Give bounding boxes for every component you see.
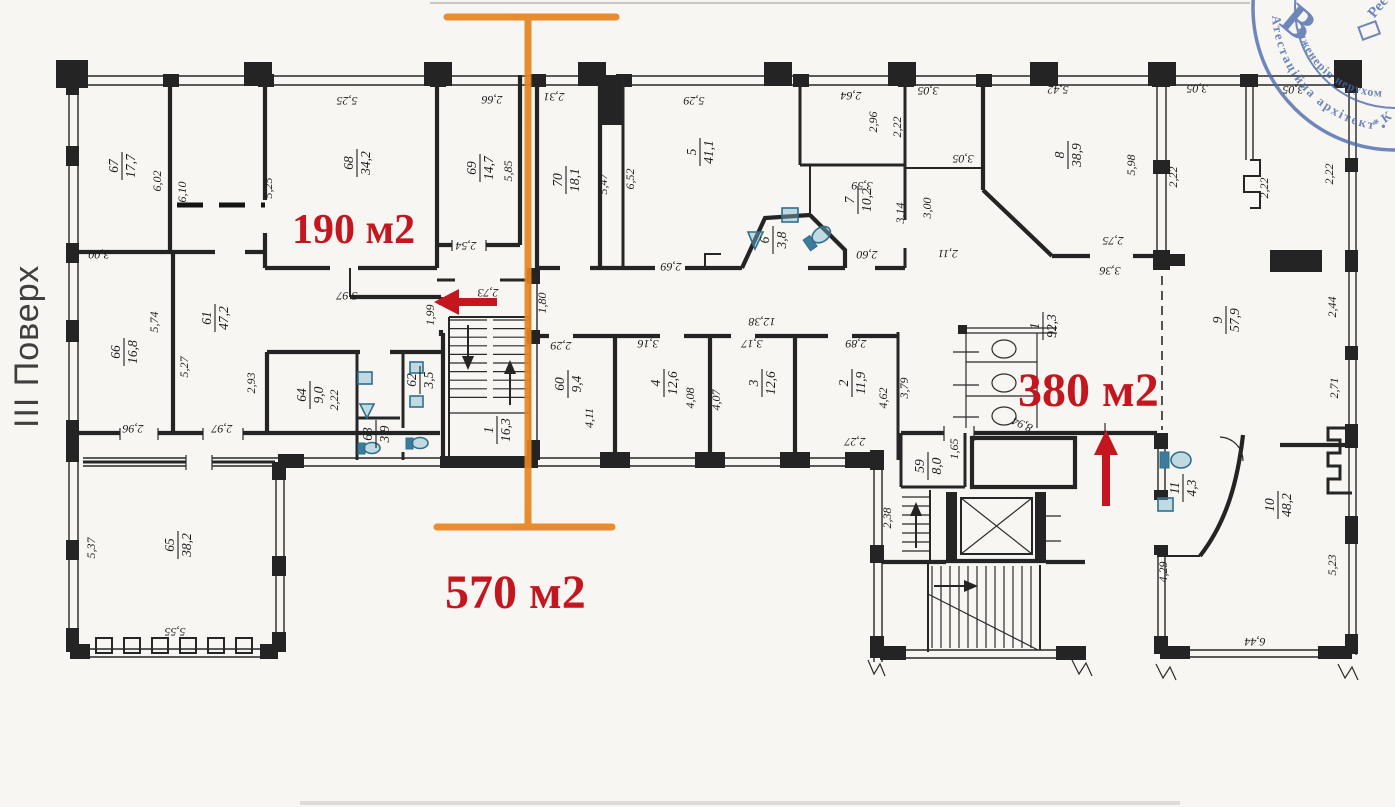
svg-text:70: 70 <box>550 173 565 187</box>
room-label: 312,6 <box>746 369 778 397</box>
dimension-label: 2,22 <box>890 117 904 138</box>
dimension-label: 2,27 <box>844 435 866 449</box>
svg-text:11: 11 <box>1167 482 1182 495</box>
svg-text:66: 66 <box>108 345 123 359</box>
dimension-label: 2,60 <box>857 248 878 262</box>
dimension-label: 5,23 <box>1325 555 1339 576</box>
svg-text:69: 69 <box>464 161 479 175</box>
room-label: 6914,7 <box>464 154 496 182</box>
stamp-ring-text: Атестаційна архітект • Асоціація Укр • а… <box>0 0 1393 134</box>
room-label: 211,9 <box>836 369 868 397</box>
room-label: 6717,7 <box>106 152 138 180</box>
svg-text:1: 1 <box>481 427 496 434</box>
dimension-label: 4,11 <box>582 408 596 428</box>
dimension-label: 5,27 <box>177 356 191 378</box>
dimension-label: 2,44 <box>1325 297 1339 318</box>
dimension-label: 6,10 <box>175 182 189 203</box>
svg-text:92,3: 92,3 <box>1044 314 1059 338</box>
round-stamp: Атестаційна архітект • Асоціація Укр • а… <box>0 0 1395 150</box>
dimension-label: 5,42 <box>1048 83 1069 97</box>
zone-area-380-label: 380 м2 <box>1018 364 1159 417</box>
svg-text:8,0: 8,0 <box>929 457 944 474</box>
room-label: 838,9 <box>1052 141 1084 169</box>
floor-plan-drawing: 6717,76834,26914,77018,1541,163,8710,283… <box>0 0 1395 807</box>
room-label: 116,3 <box>481 416 513 444</box>
dimension-label: 5,29 <box>684 94 705 108</box>
dimension-label: 5,97 <box>336 289 358 303</box>
svg-text:57,9: 57,9 <box>1227 308 1242 332</box>
dimension-label: 2,75 <box>1103 234 1124 248</box>
svg-text:4: 4 <box>648 379 663 386</box>
svg-text:38,9: 38,9 <box>1069 143 1084 168</box>
dimension-label: 2,29 <box>551 339 572 353</box>
dimension-label: 2,31 <box>544 90 565 104</box>
dimension-label: 2,73 <box>478 286 499 300</box>
room-label: 6834,2 <box>341 149 373 177</box>
dimension-label: 3,05 <box>1187 82 1209 96</box>
dimension-label: 6,44 <box>1245 635 1266 649</box>
svg-text:18,1: 18,1 <box>567 168 582 192</box>
svg-text:9,4: 9,4 <box>569 375 584 392</box>
dimension-label: 12,38 <box>749 315 776 329</box>
scanned-floor-plan: 6717,76834,26914,77018,1541,163,8710,283… <box>0 0 1395 807</box>
dimension-label: 4,08 <box>683 388 697 409</box>
svg-text:2: 2 <box>836 379 851 386</box>
svg-text:67: 67 <box>106 158 121 173</box>
dimension-label: 3,59 <box>852 179 874 193</box>
svg-text:47,2: 47,2 <box>216 306 231 330</box>
dimension-label: 2,64 <box>841 89 862 103</box>
svg-text:48,2: 48,2 <box>1279 493 1294 517</box>
room-label: 649,0 <box>294 381 326 409</box>
svg-text:65: 65 <box>162 538 177 552</box>
svg-text:3: 3 <box>746 379 761 387</box>
dimension-label: 2,66 <box>482 93 503 107</box>
svg-text:60: 60 <box>552 377 567 391</box>
staircase-bottom <box>902 497 1038 650</box>
dimension-label: 3,16 <box>638 337 660 351</box>
dimension-label: 2,38 <box>880 508 894 529</box>
floor-title: III Поверх <box>8 265 46 428</box>
svg-text:10: 10 <box>1262 498 1277 512</box>
svg-text:9,0: 9,0 <box>311 386 326 403</box>
dimension-label: 4,29 <box>1156 562 1170 583</box>
dimension-label: 2,69 <box>661 260 682 274</box>
svg-text:16,3: 16,3 <box>498 418 513 442</box>
dimension-label: 2,97 <box>211 422 233 436</box>
dimension-label: 2,22 <box>1257 178 1271 199</box>
dimension-label: 3,05 <box>953 152 975 166</box>
svg-text:61: 61 <box>199 311 214 325</box>
dimension-label: 5,98 <box>1124 155 1138 176</box>
svg-text:9: 9 <box>1210 316 1225 323</box>
stamp-emblem-icon <box>1358 21 1379 39</box>
dimension-label: 4,62 <box>876 388 890 409</box>
room-label: 609,4 <box>552 370 584 398</box>
section-marks-orange <box>437 17 616 527</box>
dimension-label: 5,37 <box>84 537 98 559</box>
svg-text:7: 7 <box>842 195 857 203</box>
dimension-label: 3,00 <box>920 198 934 220</box>
dimension-label: 2,71 <box>1327 378 1341 399</box>
dimension-label: 3,17 <box>741 337 764 351</box>
dimension-label: 2,22 <box>1166 167 1180 188</box>
dimension-label: 3,14 <box>893 203 907 225</box>
room-label: 63,8 <box>757 226 789 254</box>
svg-text:3,5: 3,5 <box>421 371 436 389</box>
svg-text:34,2: 34,2 <box>358 151 373 176</box>
dimension-label: 4,07 <box>709 389 723 411</box>
svg-text:8: 8 <box>1052 151 1067 158</box>
svg-text:14,7: 14,7 <box>481 155 496 180</box>
staircase-middle <box>449 320 530 413</box>
dimension-label: 2,54 <box>456 239 477 253</box>
dimension-label: 2,22 <box>1322 164 1336 185</box>
room-label: 7018,1 <box>550 166 582 194</box>
svg-text:12,6: 12,6 <box>665 371 680 395</box>
dimension-label: 5,25 <box>337 94 358 108</box>
red-arrow-up <box>1094 430 1118 506</box>
room-label: 192,3 <box>1027 312 1059 340</box>
dimension-label: 3,79 <box>897 378 911 400</box>
dimension-label: 2,11 <box>938 247 958 261</box>
svg-text:16,8: 16,8 <box>125 340 140 364</box>
svg-text:3,8: 3,8 <box>774 231 789 249</box>
svg-text:3,9: 3,9 <box>377 425 392 443</box>
dimension-label: 2,93 <box>244 373 258 394</box>
room-label: 412,6 <box>648 369 680 397</box>
stamp-fragment-side: Реє <box>1365 0 1392 21</box>
zone-area-190-label: 190 м2 <box>292 207 415 253</box>
room-label: 6147,2 <box>199 304 231 332</box>
room-label: 6616,8 <box>108 338 140 366</box>
dimension-label: 6,02 <box>150 171 164 192</box>
dimension-label: 6,52 <box>623 169 637 190</box>
svg-text:12,6: 12,6 <box>763 371 778 395</box>
dimension-label: 1,65 <box>947 439 961 460</box>
dimension-label: 2,96 <box>123 422 144 436</box>
dimension-label: 5,25 <box>261 178 275 199</box>
dimension-label: 2,22 <box>327 390 341 411</box>
dimension-label: 2,96 <box>866 112 880 133</box>
dimension-label: 5,47 <box>596 173 610 195</box>
svg-text:68: 68 <box>341 156 356 170</box>
room-label: 598,0 <box>912 452 944 480</box>
room-label: 1048,2 <box>1262 491 1294 519</box>
room-label: 6538,2 <box>162 531 194 559</box>
svg-text:6: 6 <box>757 236 772 243</box>
dimension-label: 3,36 <box>1100 264 1122 278</box>
svg-text:62: 62 <box>404 373 419 387</box>
dimension-label: 3,00 <box>89 248 111 262</box>
room-label: 541,1 <box>684 138 716 166</box>
dimension-label: 1,99 <box>423 305 437 326</box>
svg-text:63: 63 <box>360 427 375 441</box>
svg-text:5: 5 <box>684 148 699 155</box>
svg-text:17,7: 17,7 <box>123 153 138 178</box>
dimension-label: 2,89 <box>846 337 867 351</box>
svg-text:59: 59 <box>912 459 927 473</box>
zone-area-570-label: 570 м2 <box>445 566 586 619</box>
svg-text:64: 64 <box>294 388 309 402</box>
dimension-label: 5,74 <box>147 312 161 333</box>
svg-text:1: 1 <box>1027 323 1042 330</box>
room-label: 957,9 <box>1210 306 1242 334</box>
dimension-label: 5,85 <box>501 161 515 182</box>
dimension-label: 3,05 <box>918 84 940 98</box>
room-label: 623,5 <box>404 366 436 394</box>
svg-text:38,2: 38,2 <box>179 533 194 558</box>
svg-text:4,3: 4,3 <box>1184 479 1199 496</box>
svg-text:41,1: 41,1 <box>701 140 716 164</box>
dimension-label: 1,80 <box>535 293 549 314</box>
dimension-label: 5,55 <box>165 625 186 639</box>
svg-text:11,9: 11,9 <box>853 371 868 394</box>
